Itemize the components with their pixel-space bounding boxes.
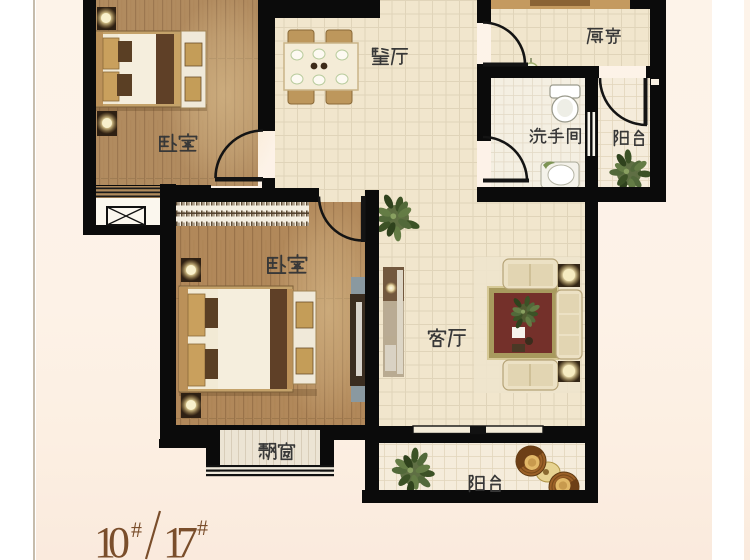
svg-text:#: #	[131, 517, 142, 542]
svg-text:#: #	[197, 515, 208, 540]
svg-text:17: 17	[163, 518, 198, 560]
svg-text:10: 10	[94, 518, 130, 560]
